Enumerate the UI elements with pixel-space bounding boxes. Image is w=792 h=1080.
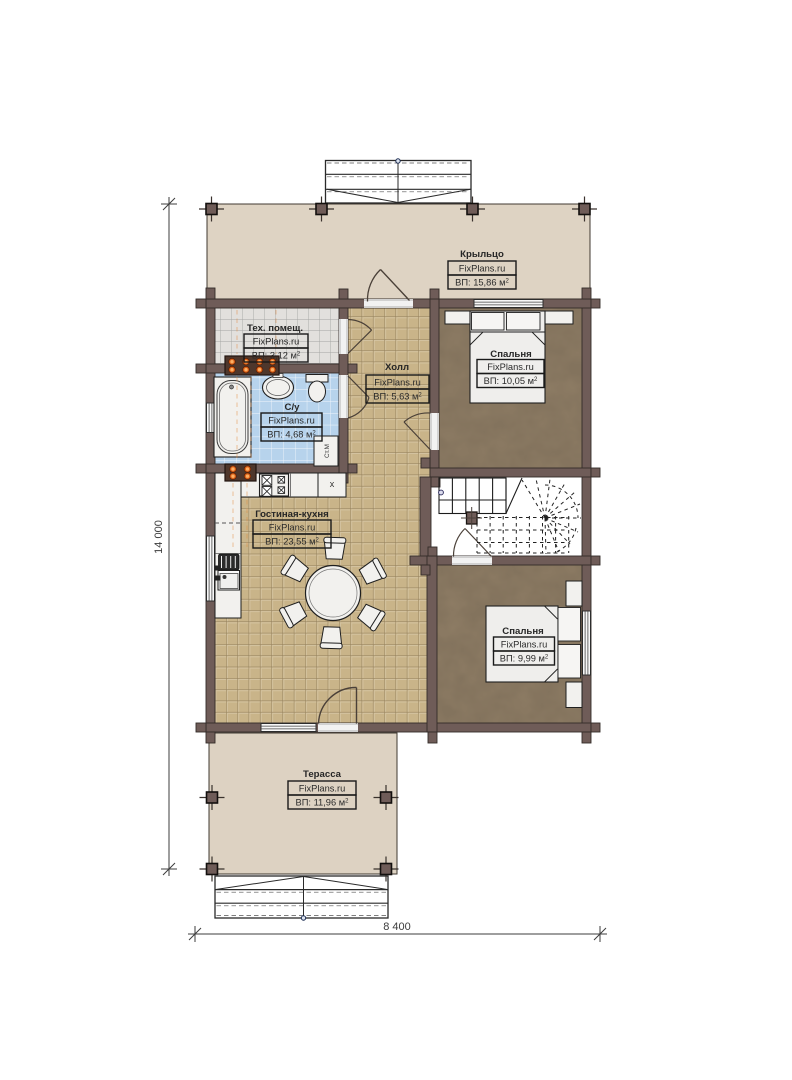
svg-text:С/у: С/у [285,402,301,413]
svg-text:FixPlans.ru: FixPlans.ru [501,639,548,649]
svg-text:8 400: 8 400 [383,921,411,933]
svg-text:FixPlans.ru: FixPlans.ru [374,377,421,387]
svg-text:FixPlans.ru: FixPlans.ru [299,783,346,793]
svg-text:Терасса: Терасса [303,769,342,780]
svg-text:x: x [330,479,335,489]
svg-text:ВП: 11,96 м2: ВП: 11,96 м2 [296,797,350,807]
svg-text:Гостиная-кухня: Гостиная-кухня [255,509,329,520]
svg-text:ВП: 4,68 м2: ВП: 4,68 м2 [267,429,316,439]
svg-text:ВП: 5,63 м2: ВП: 5,63 м2 [373,391,422,401]
svg-text:FixPlans.ru: FixPlans.ru [459,263,506,273]
svg-text:Ст.М: Ст.М [324,444,331,458]
svg-text:FixPlans.ru: FixPlans.ru [269,522,316,532]
svg-text:Тех. помещ.: Тех. помещ. [247,323,303,334]
svg-text:ВП: 9,99 м2: ВП: 9,99 м2 [500,653,549,663]
svg-text:ВП: 23,55 м2: ВП: 23,55 м2 [265,536,319,546]
svg-text:FixPlans.ru: FixPlans.ru [253,336,300,346]
svg-text:Спальня: Спальня [502,626,543,637]
svg-text:Холл: Холл [385,362,409,373]
svg-text:14 000: 14 000 [153,520,165,554]
svg-text:ВП: 10,05 м2: ВП: 10,05 м2 [484,376,538,386]
svg-text:ВП: 15,86 м2: ВП: 15,86 м2 [455,277,509,287]
svg-text:ВП: 3,12 м2: ВП: 3,12 м2 [252,350,301,360]
svg-text:FixPlans.ru: FixPlans.ru [487,362,534,372]
svg-text:FixPlans.ru: FixPlans.ru [268,415,315,425]
svg-text:Спальня: Спальня [490,349,531,360]
svg-text:Крыльцо: Крыльцо [460,249,504,260]
